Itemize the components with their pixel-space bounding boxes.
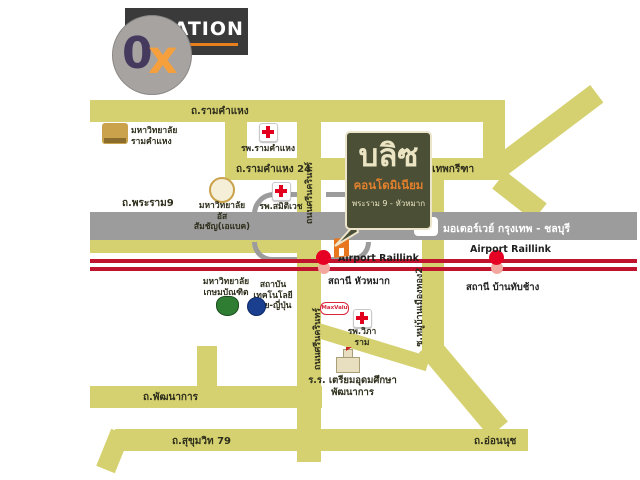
location-map: ↩ มอเตอร์เวย์ กรุงเทพ - ชลบุรี Airport R… bbox=[0, 0, 640, 480]
school-line1: ร.ร. เตรียมอุดมศึกษา bbox=[308, 375, 397, 386]
samitivej-hospital-label: รพ.สมิติเวช bbox=[258, 202, 304, 213]
abac-university-label: มหาวิทยาลัย อัสสัมชัญ(เอแบค) bbox=[193, 201, 251, 233]
kasem-line1: มหาวิทยาลัย bbox=[203, 277, 249, 287]
ramkhamhaeng24-road-label: ถ.รามคำแหง 24 bbox=[236, 162, 311, 177]
project-name: บลิซ bbox=[347, 139, 430, 175]
road-diagonal-to-onnut bbox=[419, 337, 508, 437]
ramkhamhaeng-hospital-cross-icon bbox=[259, 123, 278, 142]
ramkhamhaeng-university-label: มหาวิทยาลัย รามคำแหง bbox=[131, 126, 177, 147]
road-university-stub bbox=[197, 346, 217, 388]
maxvalu-sign: MaxValu bbox=[320, 302, 349, 315]
banthapchang-station-label: สถานี บ้านทับช้าง bbox=[466, 280, 539, 295]
school-body-icon bbox=[336, 357, 360, 373]
vibharam-hospital-cross-icon bbox=[353, 309, 372, 328]
cross-h bbox=[262, 130, 274, 134]
vibharam-hospital-label: รพ.วิภาราม bbox=[341, 327, 383, 348]
road-sukhumvit79-bend bbox=[96, 429, 130, 474]
srinagarindra-road-label-upper: ถนนศรีนครินทร์ bbox=[302, 148, 316, 238]
triamudom-school-icon bbox=[336, 347, 358, 373]
project-door-icon bbox=[339, 248, 344, 257]
thai-nichi-institute-icon bbox=[247, 297, 266, 316]
ramkhamhaeng-university-line2: รามคำแหง bbox=[131, 137, 172, 147]
road-phatthanakan bbox=[90, 386, 322, 408]
watermark-x-glyph: x bbox=[148, 30, 178, 84]
kasem-bundit-university-icon bbox=[216, 296, 239, 316]
ramkhamhaeng-university-line1: มหาวิทยาลัย bbox=[131, 126, 177, 136]
muangthong2-road-label: ซ.หมู่บ้านเมืองทอง2 bbox=[412, 262, 426, 352]
project-location: พระราม 9 - หัวหมาก bbox=[347, 197, 430, 210]
cross-h bbox=[356, 316, 368, 320]
school-flag-icon bbox=[346, 347, 352, 351]
railway-line-bottom bbox=[90, 267, 637, 271]
onnut-road-label: ถ.อ่อนนุช bbox=[474, 434, 516, 449]
school-line2: พัฒนาการ bbox=[331, 387, 374, 398]
ramkhamhaeng-hospital-label: รพ.รามคำแหง bbox=[239, 144, 297, 155]
olx-watermark: 0 x bbox=[112, 15, 192, 95]
samitivej-hospital-cross-icon bbox=[272, 182, 291, 201]
ramkhamhaeng-university-base-icon bbox=[104, 138, 126, 143]
abac-line1: มหาวิทยาลัย bbox=[199, 201, 245, 211]
banthapchang-line-label: Airport Raillink bbox=[470, 244, 551, 255]
huamak-line-label: Airport Raillink bbox=[338, 253, 419, 264]
abac-university-icon bbox=[209, 177, 235, 203]
huamak-station-icon bbox=[316, 250, 331, 265]
ramkhamhaeng-road-label: ถ.รามคำแหง bbox=[191, 104, 249, 119]
triamudom-school-label: ร.ร. เตรียมอุดมศึกษา พัฒนาการ bbox=[295, 375, 410, 399]
ramkhamhaeng-university-icon bbox=[102, 123, 128, 144]
abac-line2: อัสสัมชัญ(เอแบค) bbox=[194, 212, 250, 233]
sukhumvit79-road-label: ถ.สุขุมวิท 79 bbox=[172, 434, 231, 449]
cross-h bbox=[275, 189, 287, 193]
project-type: คอนโดมิเนียม bbox=[347, 177, 430, 195]
phatthanakan-road-label: ถ.พัฒนาการ bbox=[143, 390, 198, 405]
project-callout: บลิซ คอนโดมิเนียม พระราม 9 - หัวหมาก bbox=[345, 131, 432, 230]
huamak-station-label: สถานี หัวหมาก bbox=[328, 274, 390, 289]
road-kreetha-diagonal-up bbox=[490, 85, 603, 178]
motorway-label: มอเตอร์เวย์ กรุงเทพ - ชลบุรี bbox=[443, 220, 570, 237]
rama9-road-label: ถ.พระราม9 bbox=[122, 196, 174, 211]
